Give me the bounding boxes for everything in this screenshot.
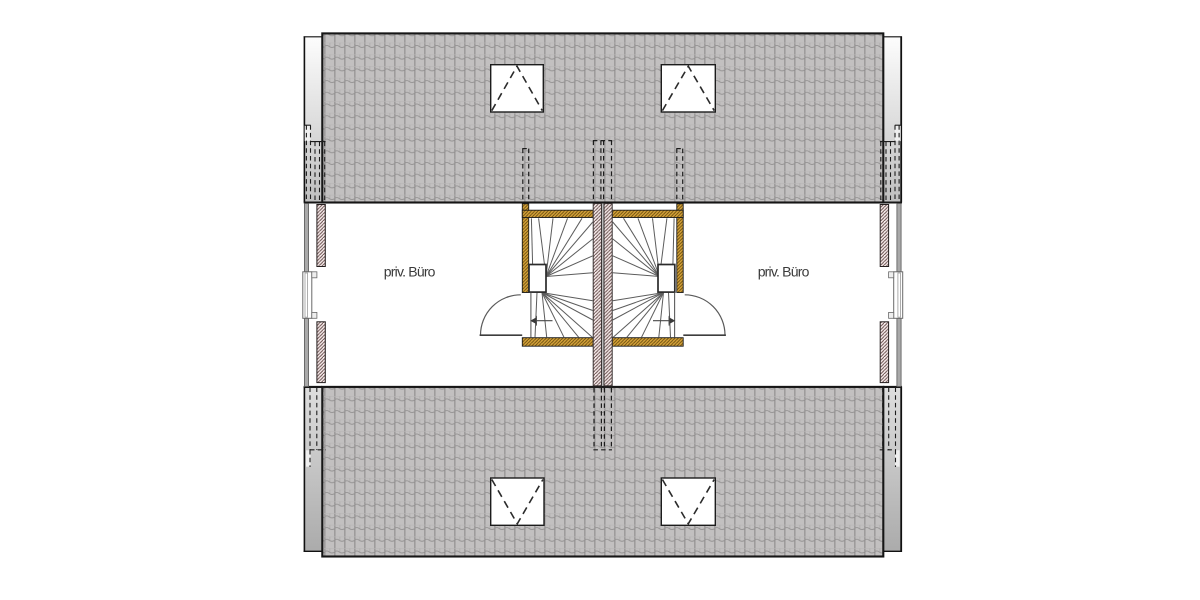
svg-text:priv. Büro: priv. Büro — [384, 264, 436, 280]
svg-text:priv. Büro: priv. Büro — [758, 264, 810, 280]
